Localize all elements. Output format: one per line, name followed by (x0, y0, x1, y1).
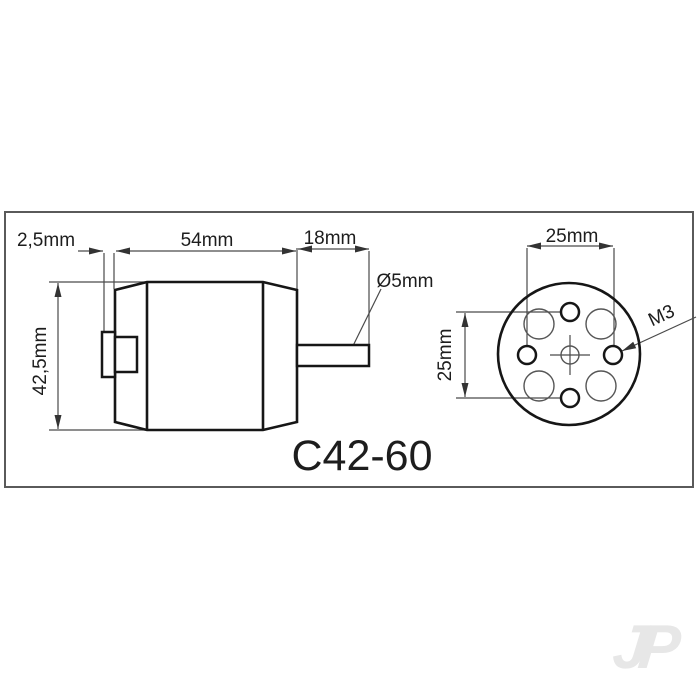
arrow-body-height-top (55, 283, 62, 297)
dim-holes-v-label: 25mm (435, 329, 456, 382)
mount-hole-bottom (561, 389, 579, 407)
dim-holes-h-label: 25mm (546, 226, 599, 247)
watermark-logo: JP (610, 613, 685, 682)
model-title: C42-60 (291, 432, 432, 480)
screenshot-canvas: 2,5mm 54mm 18mm Ø5mm 42,5mm (0, 0, 700, 700)
arrow-boss-offset (89, 248, 103, 255)
rear-boss (102, 332, 115, 377)
dim-body-length-label: 54mm (181, 230, 234, 251)
technical-drawing: 2,5mm 54mm 18mm Ø5mm 42,5mm (0, 0, 700, 700)
mount-hole-left (518, 346, 536, 364)
dim-body-height-label: 42,5mm (30, 327, 51, 396)
arrow-holes-h-right (599, 243, 613, 250)
motor-shaft (297, 345, 369, 366)
dim-shaft-length-label: 18mm (304, 228, 357, 249)
side-view: 2,5mm 54mm 18mm Ø5mm 42,5mm (17, 228, 434, 430)
mount-hole-top (561, 303, 579, 321)
arrow-holes-h-left (527, 243, 541, 250)
arrow-holes-v-bottom (462, 383, 469, 397)
arrow-body-length-left (116, 248, 130, 255)
arrow-holes-v-top (462, 313, 469, 327)
rear-bearing-housing (115, 337, 137, 372)
front-view: 25mm 25mm M3 (435, 226, 696, 425)
dim-boss-offset-label: 2,5mm (17, 230, 75, 251)
dim-shaft-diameter-label: Ø5mm (377, 271, 434, 292)
thread-callout-label: M3 (645, 301, 678, 331)
arrow-body-height-bottom (55, 415, 62, 429)
mount-hole-right (604, 346, 622, 364)
arrow-shaft-length-right (355, 246, 369, 253)
arrow-body-length-right (282, 248, 296, 255)
motor-body-fill (115, 282, 297, 430)
